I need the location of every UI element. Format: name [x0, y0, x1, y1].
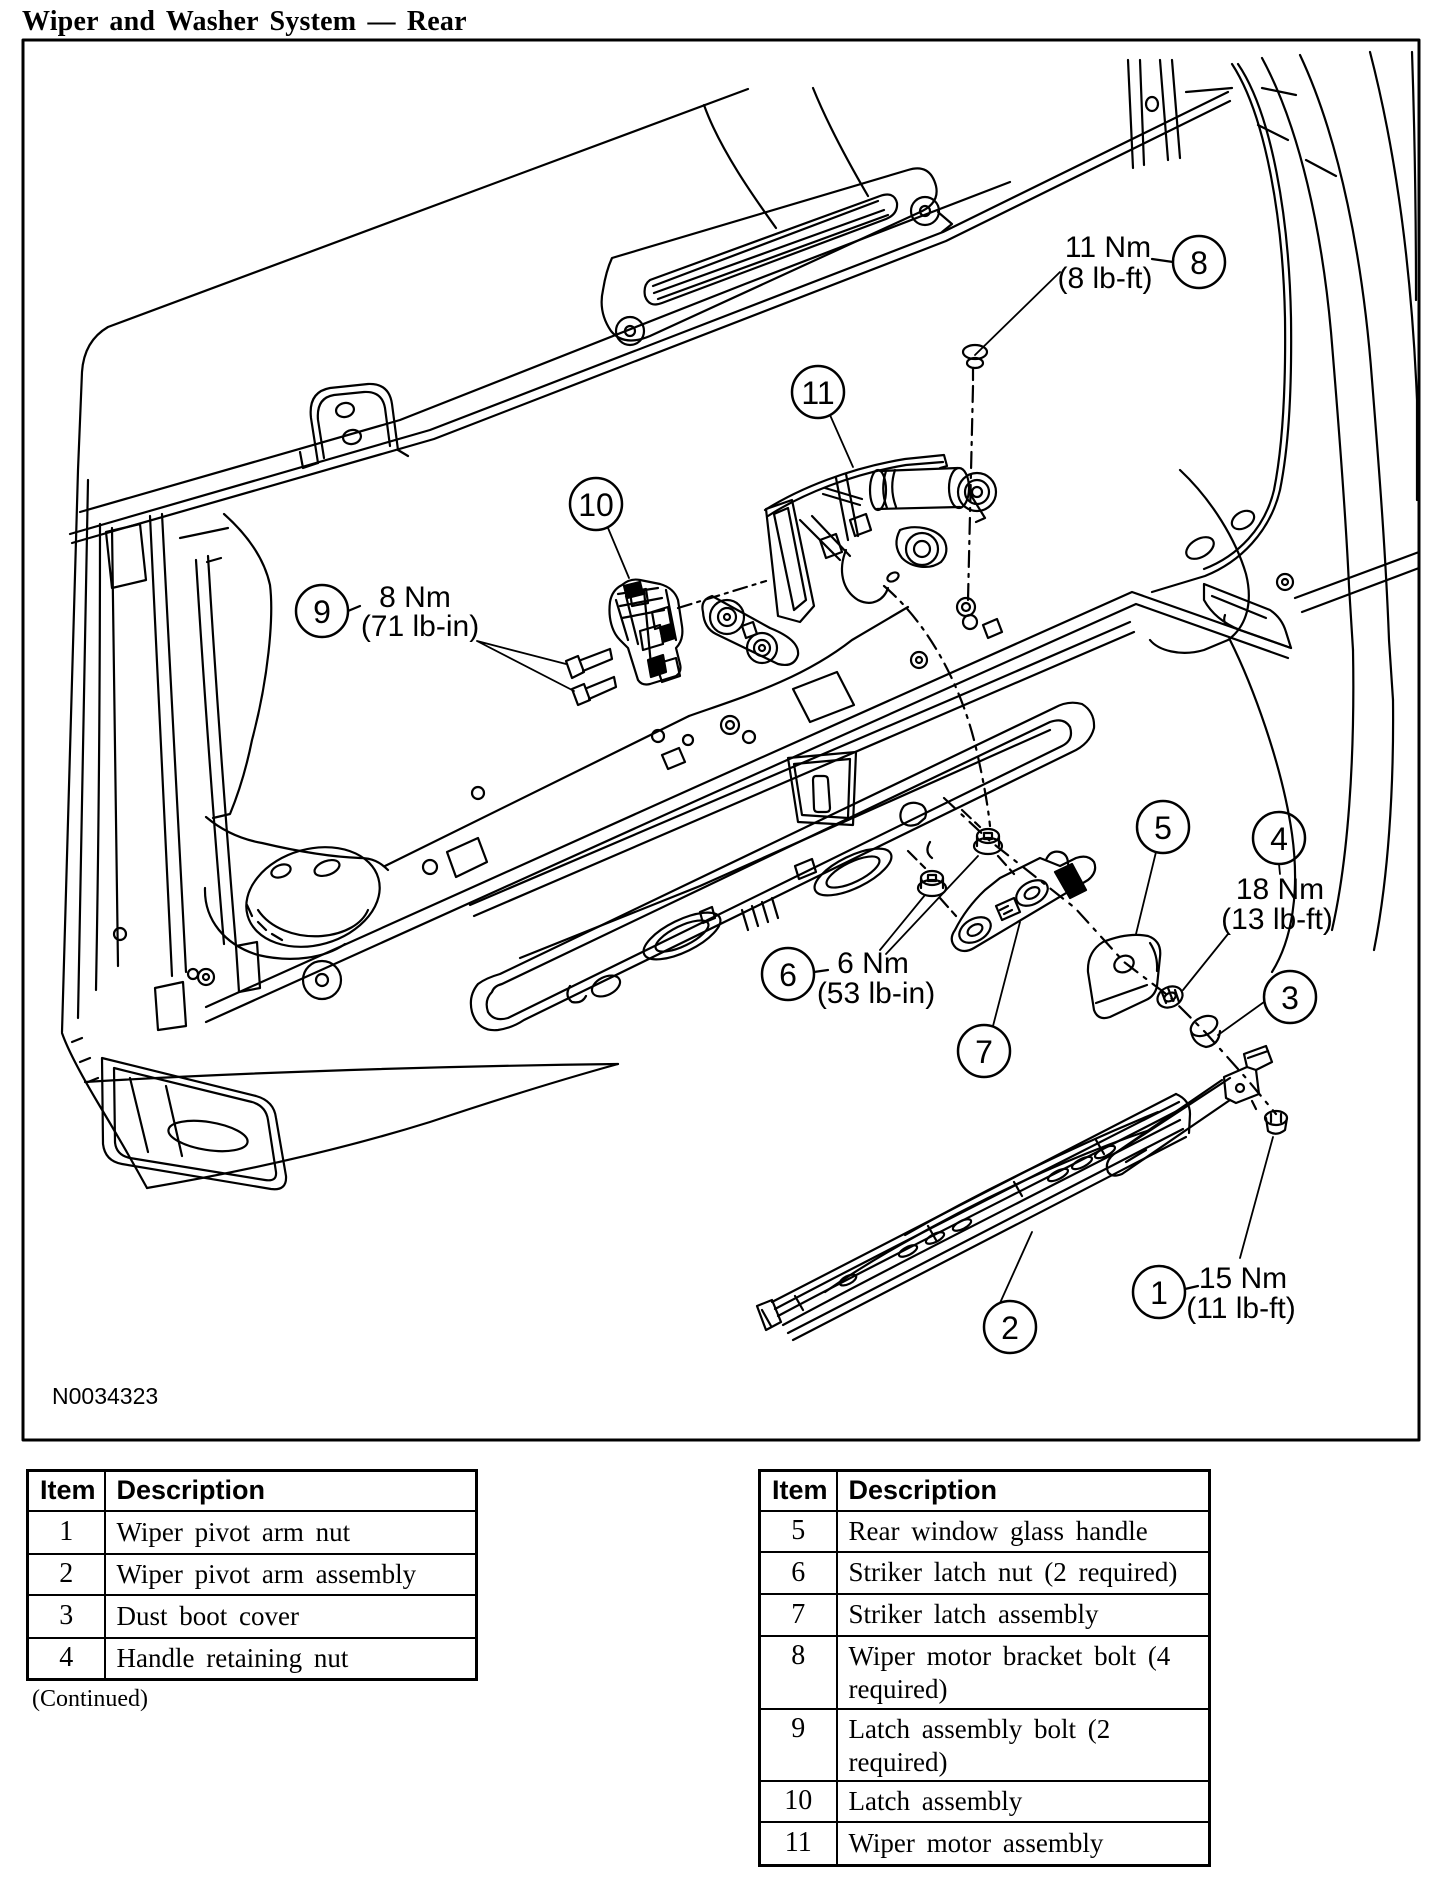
svg-text:(53 lb-in): (53 lb-in)	[817, 977, 935, 1010]
svg-text:N0034323: N0034323	[52, 1383, 158, 1409]
svg-text:1: 1	[1150, 1275, 1168, 1311]
svg-text:3: 3	[1281, 980, 1299, 1016]
svg-text:(13 lb-ft): (13 lb-ft)	[1221, 903, 1333, 936]
svg-text:18 Nm: 18 Nm	[1236, 873, 1324, 906]
svg-text:6: 6	[779, 957, 797, 993]
svg-text:(8 lb-ft): (8 lb-ft)	[1057, 262, 1152, 295]
svg-text:(11 lb-ft): (11 lb-ft)	[1186, 1292, 1295, 1325]
svg-text:5: 5	[1154, 810, 1172, 846]
svg-text:8: 8	[1190, 245, 1208, 281]
svg-text:(71 lb-in): (71 lb-in)	[361, 610, 479, 643]
svg-text:6 Nm: 6 Nm	[837, 947, 909, 980]
svg-text:9: 9	[313, 594, 331, 630]
svg-text:7: 7	[975, 1034, 993, 1070]
svg-text:15 Nm: 15 Nm	[1199, 1262, 1287, 1295]
svg-text:11: 11	[801, 375, 834, 411]
svg-text:2: 2	[1001, 1310, 1019, 1346]
svg-text:10: 10	[578, 487, 614, 523]
svg-text:4: 4	[1270, 821, 1288, 857]
svg-text:11 Nm: 11 Nm	[1065, 231, 1151, 264]
